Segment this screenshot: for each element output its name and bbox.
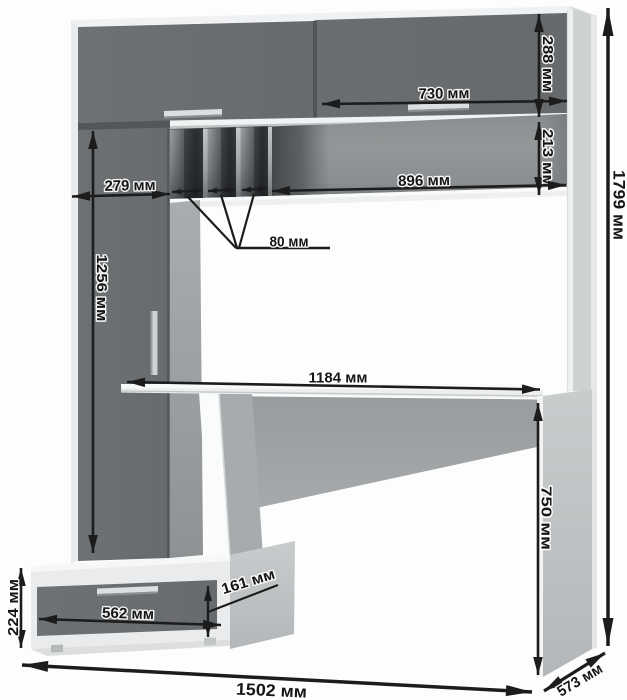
svg-text:224 мм: 224 мм	[5, 579, 22, 636]
svg-text:1184 мм: 1184 мм	[309, 369, 368, 386]
svg-text:1799 мм: 1799 мм	[609, 170, 627, 240]
svg-text:750 мм: 750 мм	[538, 486, 555, 550]
svg-text:80 мм: 80 мм	[270, 233, 309, 250]
svg-text:730 мм: 730 мм	[418, 85, 469, 103]
svg-text:1256 мм: 1256 мм	[93, 255, 110, 322]
svg-text:213 мм: 213 мм	[539, 129, 556, 187]
svg-text:279 мм: 279 мм	[104, 177, 155, 195]
svg-text:1502 мм: 1502 мм	[236, 680, 308, 700]
svg-text:562 мм: 562 мм	[102, 604, 155, 623]
svg-text:896 мм: 896 мм	[398, 172, 450, 190]
svg-text:288 мм: 288 мм	[539, 36, 556, 92]
